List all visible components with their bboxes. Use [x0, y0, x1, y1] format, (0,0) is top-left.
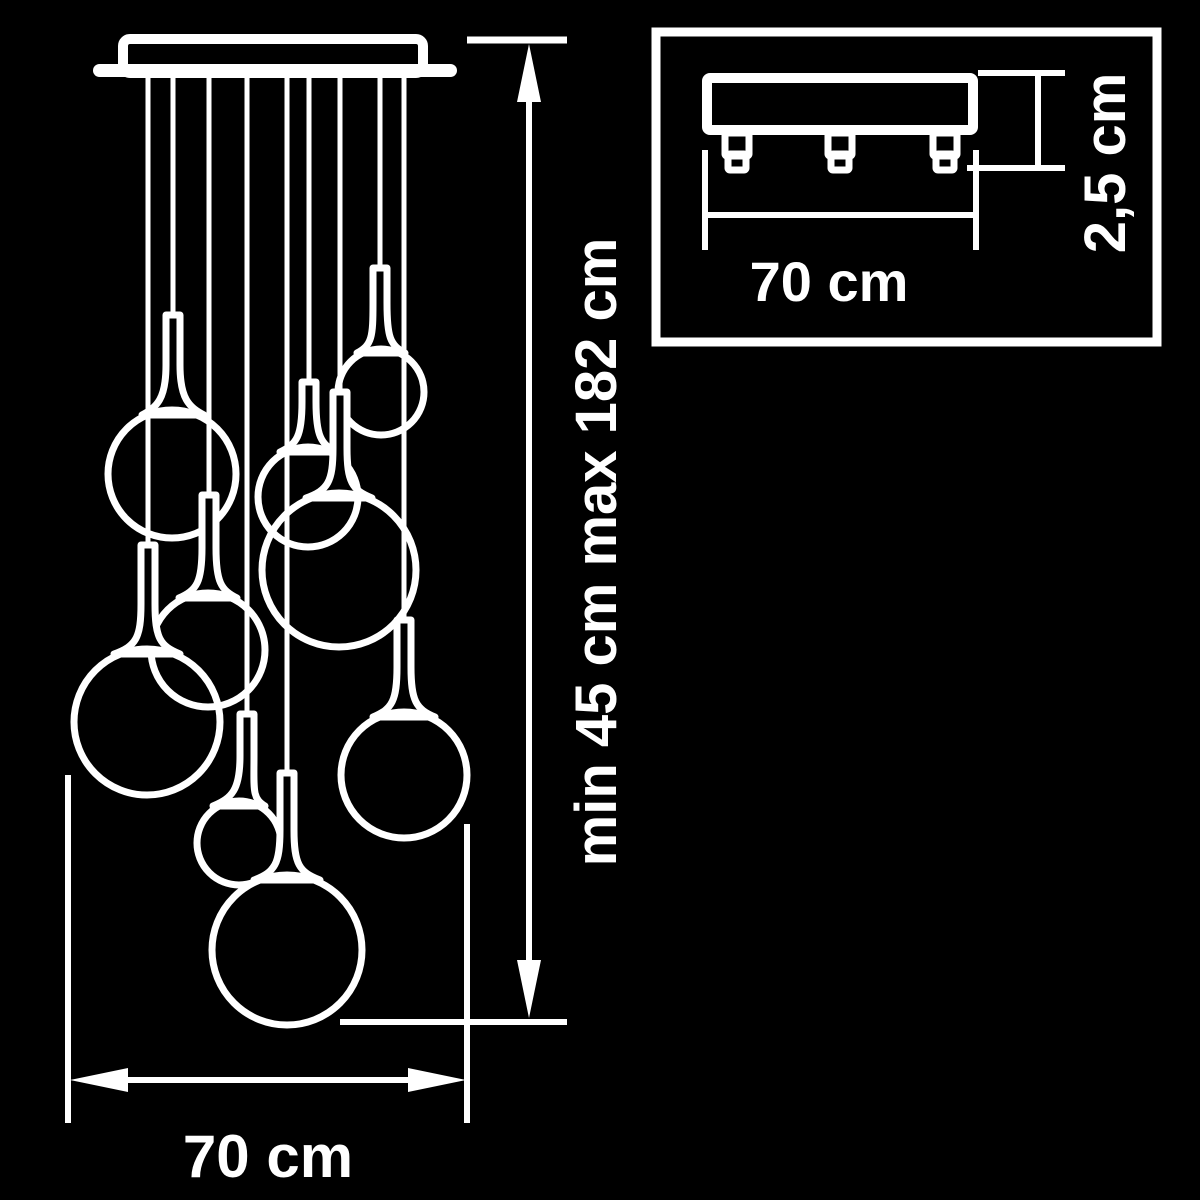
- inset-thickness-label: 2,5 cm: [1073, 73, 1138, 254]
- height-dimension: min 45 cm max 182 cm: [340, 40, 629, 1022]
- ceiling-canopy: [93, 39, 457, 77]
- diagram-canvas: min 45 cm max 182 cm 70 cm: [0, 0, 1200, 1200]
- pendant-globe: [212, 875, 362, 1025]
- arrow-right-icon: [408, 1068, 466, 1092]
- arrow-down-icon: [517, 960, 541, 1018]
- arrow-up-icon: [517, 44, 541, 102]
- pendant: [108, 72, 236, 538]
- pendant-funnel: [357, 268, 405, 353]
- pendants: [74, 72, 467, 1025]
- pendant: [74, 72, 220, 795]
- mount-plate: [707, 78, 973, 130]
- inset-view: 70 cm 2,5 cm: [656, 32, 1157, 342]
- pendant-funnel: [254, 773, 320, 880]
- main-view: min 45 cm max 182 cm 70 cm: [68, 39, 629, 1190]
- inset-width-dimension: 70 cm: [705, 150, 976, 313]
- arrow-left-icon: [70, 1068, 128, 1092]
- width-dimension-label: 70 cm: [183, 1123, 353, 1190]
- inset-width-label: 70 cm: [750, 250, 909, 313]
- height-dimension-label: min 45 cm max 182 cm: [564, 238, 629, 867]
- pendant-funnel: [114, 545, 180, 654]
- pendant: [341, 72, 467, 838]
- pendant-funnel: [142, 315, 204, 415]
- mount-connector-upper: [725, 133, 749, 156]
- inset-thickness-dimension: 2,5 cm: [967, 73, 1138, 254]
- lamp-dimension-diagram: min 45 cm max 182 cm 70 cm: [0, 0, 1200, 1200]
- pendant: [338, 72, 424, 435]
- mount-connector-upper: [828, 133, 852, 156]
- pendant-globe: [341, 712, 467, 838]
- pendant-globe: [338, 349, 424, 435]
- mount-connector-upper: [933, 133, 957, 156]
- mount-connectors: [725, 133, 957, 170]
- pendant-globe: [74, 649, 220, 795]
